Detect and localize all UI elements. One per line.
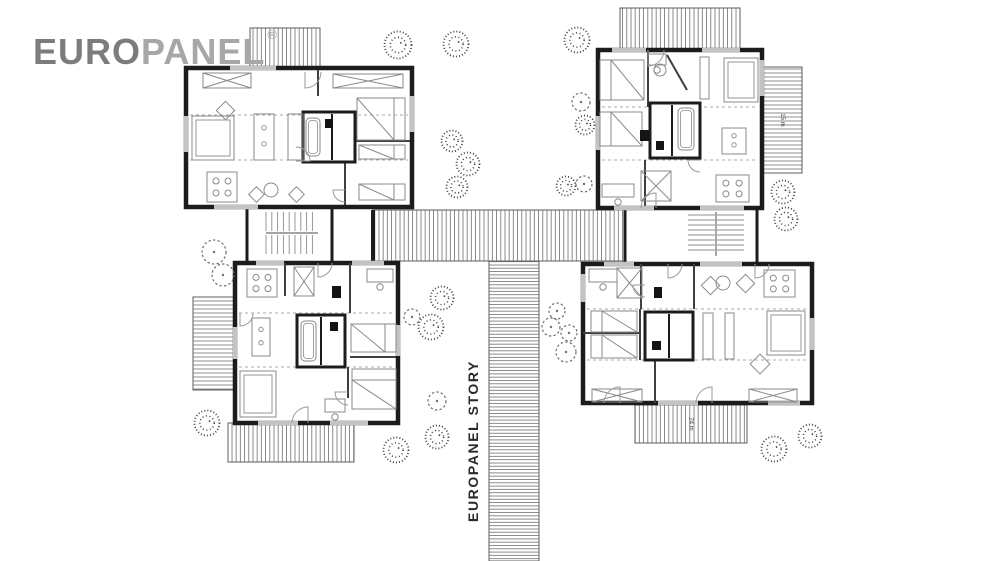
- tree-icon: [549, 303, 565, 319]
- tree-icon: [447, 177, 468, 198]
- deck-bottom-right: 24 m: [635, 405, 747, 443]
- deck-right: 15 m: [763, 67, 802, 173]
- tree-icon: [775, 208, 798, 231]
- floor-plan-page: 15 m24 m EUROPANEL® EUROPANEL STORY: [0, 0, 1000, 561]
- wall-stub: [371, 210, 375, 261]
- tree-icon: [195, 411, 220, 436]
- stairwell-left: [247, 207, 332, 263]
- tree-icon: [565, 28, 590, 53]
- tree-icon: [561, 325, 577, 341]
- tree-icon: [442, 131, 463, 152]
- building-bottom-left: [235, 263, 398, 423]
- walkway-horizontal: [373, 210, 625, 261]
- tree-icon: [572, 93, 590, 111]
- building-bottom-right: [583, 264, 812, 403]
- tree-icon: [576, 176, 592, 192]
- deck-left-bottom: [193, 297, 235, 390]
- tree-icon: [444, 32, 469, 57]
- tree-icon: [404, 309, 420, 325]
- deck-size-label: 24 m: [687, 417, 693, 430]
- tree-icon: [557, 177, 576, 196]
- europanel-story-label: EUROPANEL STORY: [465, 360, 481, 522]
- tree-icon: [772, 181, 795, 204]
- tree-icon: [212, 264, 234, 286]
- tree-icon: [542, 318, 560, 336]
- tree-icon: [202, 240, 226, 264]
- tree-icon: [426, 426, 449, 449]
- registered-trademark-icon: ®: [267, 28, 278, 41]
- tree-icon: [799, 425, 822, 448]
- building-top-right: [598, 50, 762, 208]
- site-plan-drawing: 15 m24 m: [0, 0, 1000, 561]
- europanel-logo: EUROPANEL®: [33, 34, 278, 70]
- deck-top-right: [620, 8, 740, 49]
- deck-bottom-left: [228, 423, 354, 462]
- tree-icon: [384, 438, 409, 463]
- logo-text-euro: EURO: [33, 34, 141, 70]
- tree-icon: [385, 32, 412, 59]
- tree-icon: [556, 342, 576, 362]
- stairwell-right: [625, 207, 757, 265]
- building-top-left: [186, 68, 412, 207]
- deck-size-label: 15 m: [779, 113, 785, 126]
- tree-icon: [419, 315, 444, 340]
- logo-text-panel: PANEL: [141, 34, 265, 70]
- tree-icon: [457, 153, 480, 176]
- tree-icon: [576, 116, 595, 135]
- tree-icon: [762, 437, 787, 462]
- walkway-vertical: [489, 261, 539, 561]
- tree-icon: [431, 287, 454, 310]
- tree-icon: [428, 392, 446, 410]
